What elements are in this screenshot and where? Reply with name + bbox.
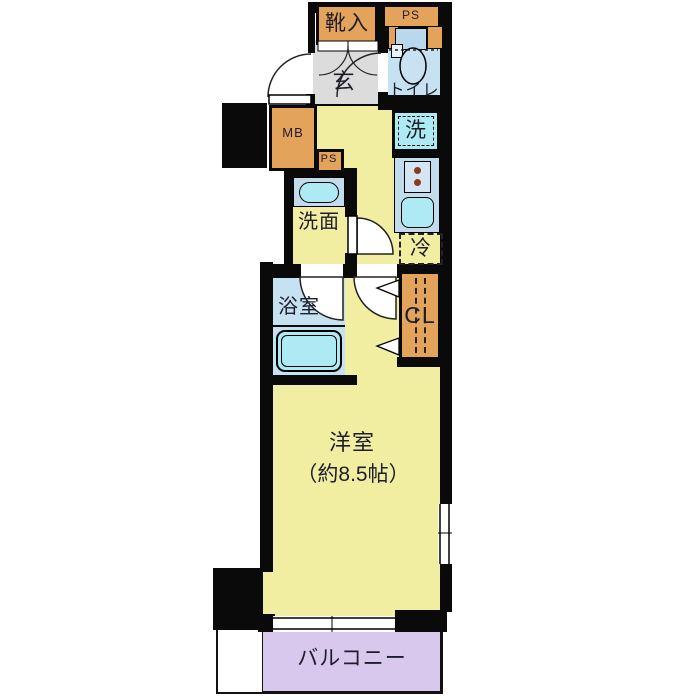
kitchen-sink: [401, 197, 434, 228]
label-ps-top: PS: [381, 9, 441, 22]
bathtub: [276, 330, 342, 372]
bathtub-inner-line: [281, 335, 337, 367]
stove: [404, 161, 431, 193]
bathroom-door-opening: [301, 264, 343, 278]
wall-bathroom-bottom: [262, 375, 357, 385]
wall-bottom-left-segment: [258, 614, 275, 632]
wall-washroom-right-lower: [345, 253, 357, 278]
label-shoe-cabinet: 靴入: [302, 13, 392, 35]
label-toilet: トイレ: [374, 83, 454, 100]
label-main-room: 洋室: [282, 431, 422, 454]
side-window: [438, 504, 452, 564]
label-ps-small: PS: [299, 154, 359, 166]
bathroom-divider-line: [272, 325, 345, 327]
stove-burner-2: [414, 179, 421, 186]
vanity-basin: [299, 182, 339, 203]
toilet-ledge-right: [427, 26, 443, 49]
wall-bottom-left-block: [213, 568, 263, 630]
structure-black-box: [222, 103, 267, 168]
main-room-floor-edge: [263, 570, 273, 618]
label-entrance: 玄: [314, 70, 374, 93]
stove-burner-1: [414, 167, 421, 174]
main-room-door-opening: [354, 264, 397, 278]
floor-plan: 靴入 PS 玄 トイレ MB PS 洗 洗面 冷 浴室 CL 洋室 （約8.5帖…: [0, 0, 700, 700]
wall-right-lower: [440, 563, 452, 612]
label-refrigerator: 冷: [391, 238, 451, 260]
label-meter-box: MB: [263, 126, 323, 140]
entrance-step-line: [313, 104, 378, 106]
label-washroom: 洗面: [279, 212, 359, 233]
label-closet: CL: [380, 303, 460, 327]
label-bathroom: 浴室: [259, 297, 339, 318]
wall-washroom-right-upper: [345, 168, 357, 217]
wall-bottom-right-block: [395, 610, 447, 632]
entrance-door-leaf: [269, 95, 311, 104]
toilet-flush-box: [391, 44, 403, 58]
label-main-room-size: （約8.5帖）: [273, 464, 433, 486]
label-washer: 洗: [386, 120, 446, 142]
label-balcony: バルコニー: [272, 648, 432, 670]
entrance-door-arc: [268, 54, 311, 97]
